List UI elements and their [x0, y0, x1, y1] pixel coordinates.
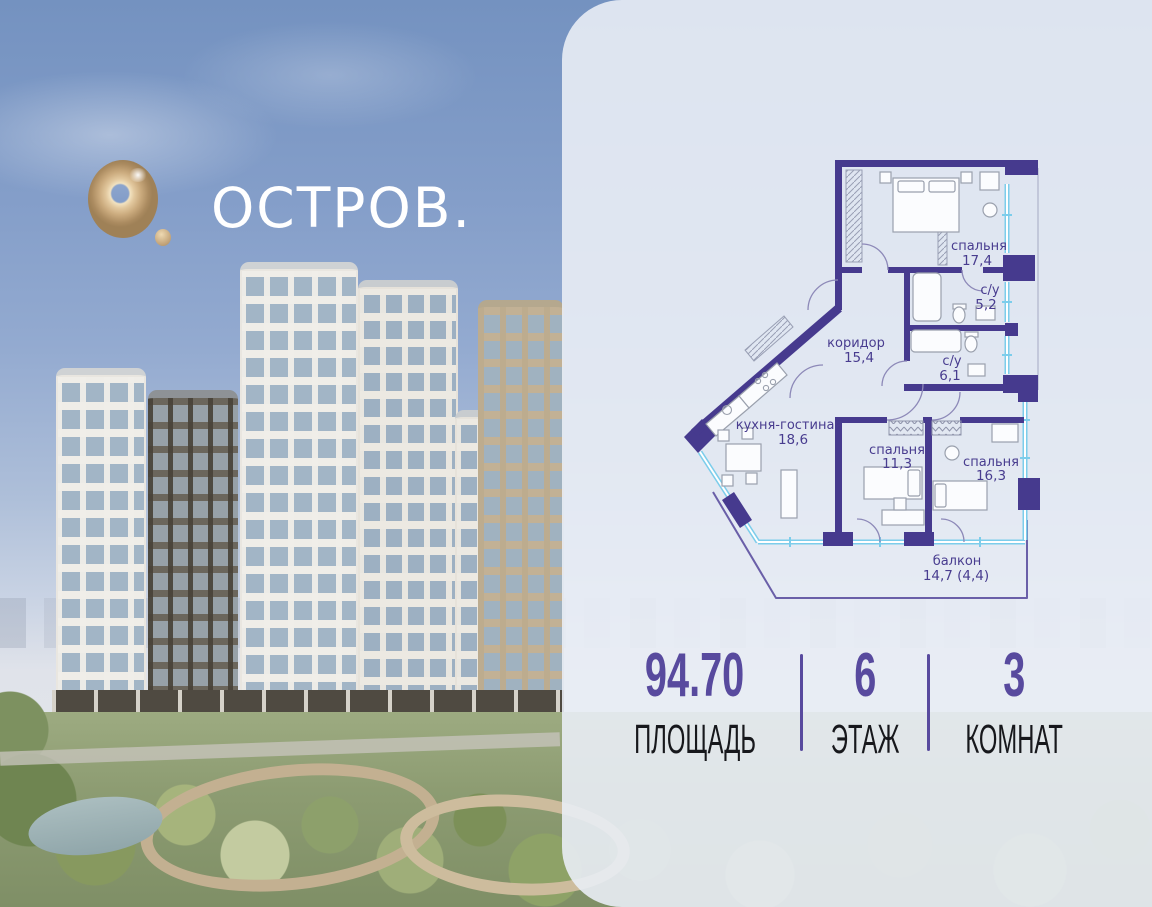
logo-dot-icon: [155, 229, 171, 246]
stat-floor-label: ЭТАЖ: [831, 719, 900, 760]
diagonal-wall: [694, 308, 839, 433]
room-area-balcony: 14,7 (4,4): [923, 568, 989, 584]
room-label-bedroom1: спальня: [951, 239, 1007, 254]
room-label-kitchen: кухня-гостиная: [736, 418, 843, 433]
stats-row: 94.70 ПЛОЩАДЬ 6 ЭТАЖ 3 КОМНАТ: [590, 645, 1098, 760]
room-label-corridor: коридор: [827, 336, 885, 351]
room-area-bath1: 5,2: [975, 297, 996, 313]
stat-floor: 6 ЭТАЖ: [803, 645, 927, 760]
stat-rooms: 3 КОМНАТ: [930, 645, 1098, 760]
brand-title: ОСТРОВ.: [211, 181, 472, 236]
room-label-bath1: с/у: [980, 283, 1000, 298]
room-area-bedroom3: 16,3: [976, 468, 1006, 484]
room-area-kitchen: 18,6: [778, 432, 808, 448]
room-label-balcony: балкон: [933, 554, 982, 569]
cloud: [180, 20, 480, 130]
stat-area-value: 94.70: [645, 645, 744, 707]
room-area-bedroom2: 11,3: [882, 456, 912, 472]
stat-rooms-label: КОМНАТ: [965, 719, 1063, 760]
stat-floor-value: 6: [854, 645, 876, 707]
room-area-bedroom1: 17,4: [962, 253, 992, 269]
room-area-corridor: 15,4: [844, 350, 874, 366]
floorplan-svg: спальня 17,4 с/у 5,2 коридор 15,4 с/у 6,…: [680, 158, 1080, 613]
room-area-bath2: 6,1: [939, 368, 960, 384]
stat-area-label: ПЛОЩАДЬ: [634, 719, 756, 760]
listing-panel: спальня 17,4 с/у 5,2 коридор 15,4 с/у 6,…: [562, 0, 1152, 907]
logo-torus-icon: [88, 160, 158, 238]
listing-card: ОСТРОВ.: [0, 0, 1152, 907]
stat-rooms-value: 3: [1003, 645, 1025, 707]
room-label-bath2: с/у: [942, 354, 962, 369]
stat-area: 94.70 ПЛОЩАДЬ: [590, 645, 800, 760]
